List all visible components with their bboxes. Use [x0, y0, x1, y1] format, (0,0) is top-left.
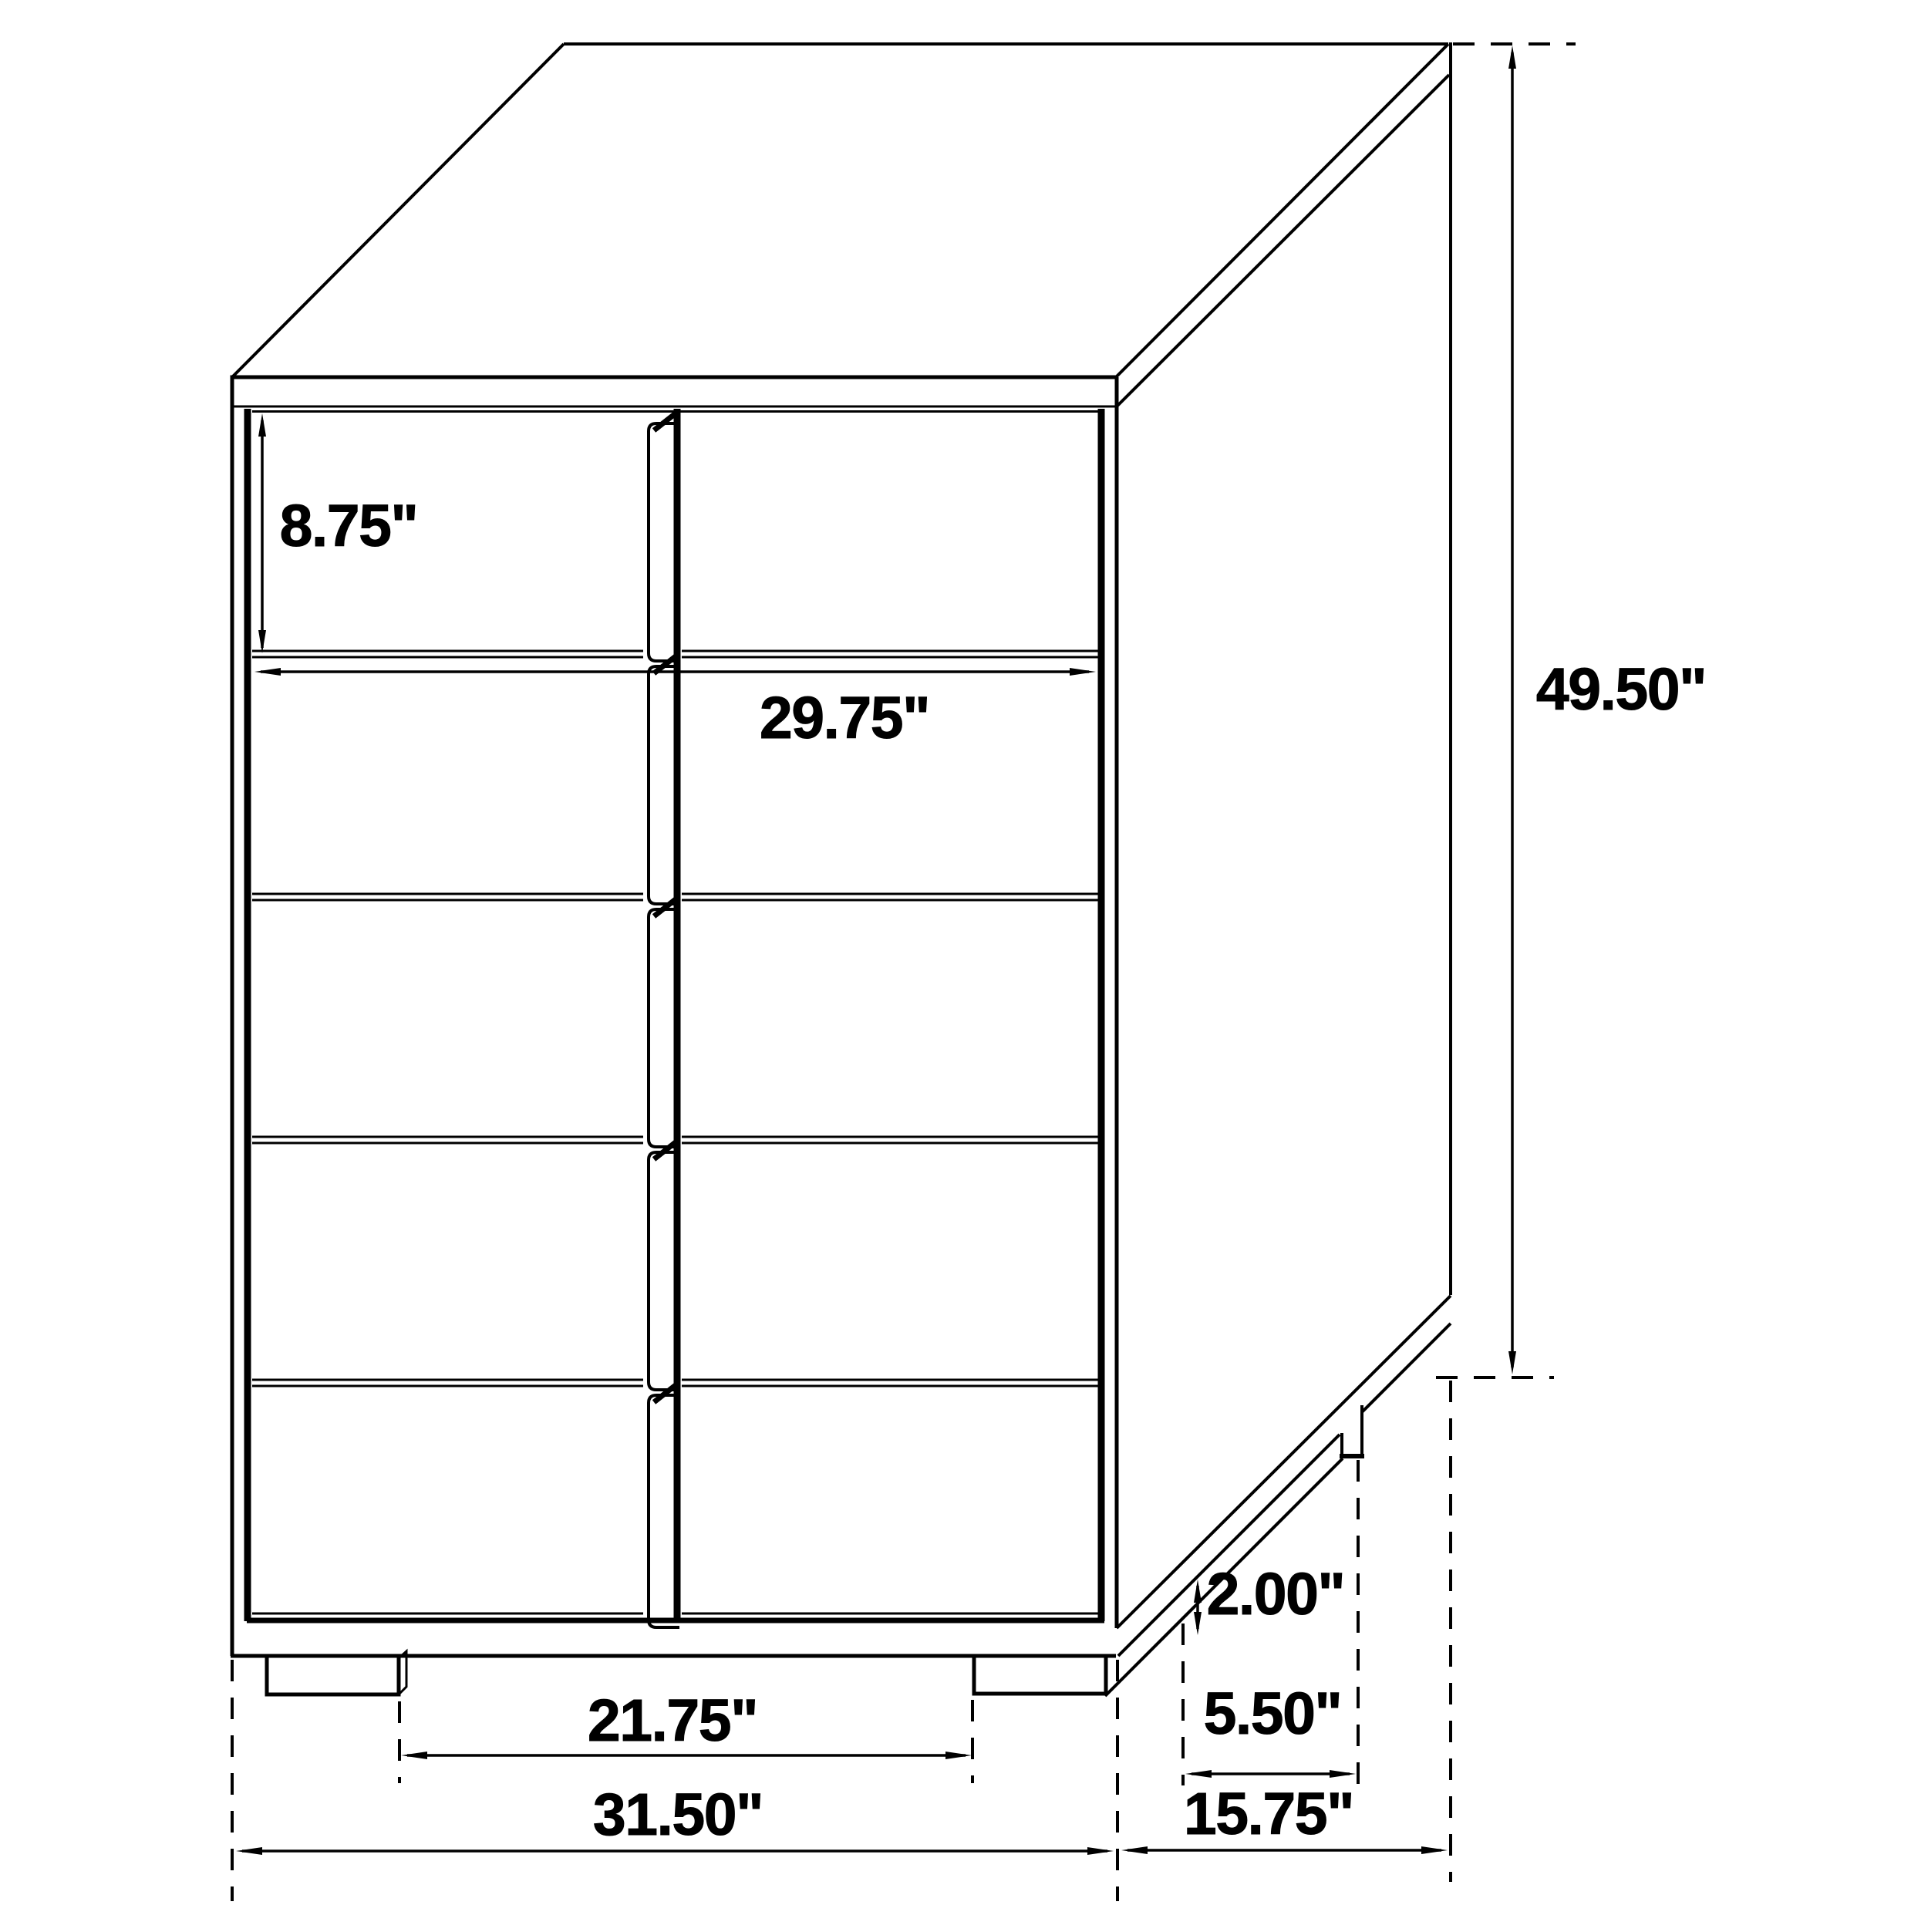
svg-text:29.75": 29.75" — [760, 685, 929, 751]
svg-text:31.50": 31.50" — [593, 1782, 763, 1848]
svg-text:15.75": 15.75" — [1184, 1781, 1353, 1847]
svg-text:8.75": 8.75" — [280, 493, 418, 559]
svg-text:49.50": 49.50" — [1536, 656, 1706, 723]
svg-text:5.50": 5.50" — [1204, 1681, 1342, 1747]
svg-text:2.00": 2.00" — [1207, 1561, 1345, 1627]
svg-text:21.75": 21.75" — [588, 1688, 757, 1754]
